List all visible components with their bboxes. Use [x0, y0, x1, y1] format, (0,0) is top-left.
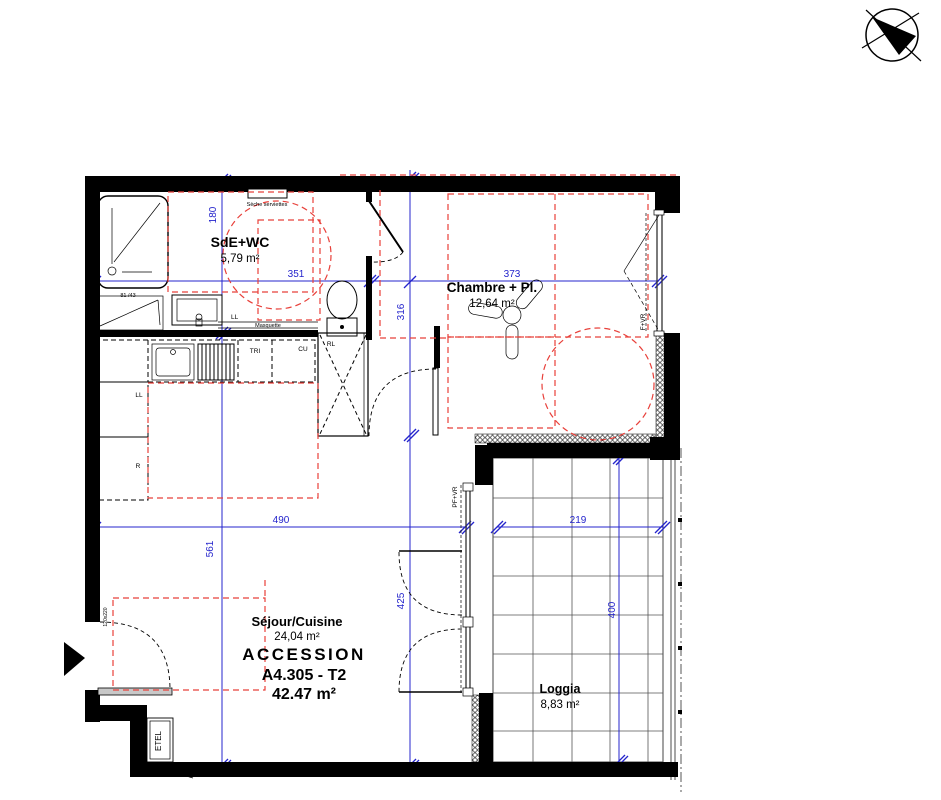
hob-icon: [198, 344, 234, 380]
label-washbasin: 81 /43: [120, 293, 135, 299]
shower-icon: [98, 196, 168, 288]
living-room-window: [461, 483, 473, 696]
loggia-tile-grid: [493, 458, 663, 762]
dim-219: 219: [570, 515, 587, 526]
dimension-ticks: [86, 172, 670, 772]
bathroom-door: [369, 201, 403, 262]
floor-plan-drawing: 351 373 490 219 180 316 561 425 400 SdE+…: [0, 0, 941, 800]
room-label-chambre: Chambre + Pl.: [447, 280, 537, 295]
label-pfvr: PF+VR: [452, 486, 459, 507]
lot-total-area: 42.47 m²: [272, 686, 336, 703]
entrance-door: [64, 622, 172, 695]
room-area-loggia: 8,83 m²: [541, 699, 580, 711]
floor-plan-page: 351 373 490 219 180 316 561 425 400 SdE+…: [0, 0, 941, 800]
dim-400: 400: [607, 601, 618, 618]
dim-490: 490: [273, 515, 290, 526]
label-masquette: Masquette: [255, 323, 281, 329]
room-label-sde: SdE+WC: [211, 234, 270, 250]
kitchen-counter: [95, 340, 315, 500]
label-etel: ETEL: [154, 730, 163, 751]
closet-icon: [318, 333, 368, 436]
label-entry-door-size: 120x220: [103, 607, 109, 626]
toilet-icon: [327, 281, 357, 336]
vanity-icon: [97, 296, 163, 330]
dim-425: 425: [396, 592, 407, 609]
loggia-railing: [671, 448, 682, 792]
room-label-loggia: Loggia: [540, 682, 582, 696]
exterior-walls: [85, 176, 680, 778]
dim-561: 561: [205, 540, 216, 557]
label-towel-dryer: Sèche serviettes: [247, 202, 288, 208]
room-area-sde: 5,79 m²: [221, 253, 260, 265]
dimension-lines: [90, 170, 663, 768]
label-tri: TRI: [250, 348, 261, 355]
dim-373: 373: [504, 269, 521, 280]
label-fvr: F+VR: [640, 313, 647, 330]
bedroom-door: [369, 368, 438, 436]
dim-316: 316: [396, 303, 407, 320]
accessibility-zones: [113, 175, 680, 690]
entrance-arrow-icon: [64, 642, 85, 676]
label-ll-bathroom: LL: [231, 314, 239, 321]
room-label-sejour: Séjour/Cuisine: [251, 614, 342, 629]
label-ll-kitchen: LL: [135, 392, 143, 399]
label-rl: RL: [327, 341, 336, 348]
label-fridge: R: [136, 463, 141, 470]
dim-180: 180: [208, 206, 219, 223]
sink-icon: [152, 344, 194, 380]
north-compass-icon: [862, 9, 921, 61]
towel-dryer-icon: [248, 189, 287, 198]
label-cu: CU: [298, 346, 308, 353]
washer-unit: [95, 382, 148, 437]
lot-reference: A4.305 - T2: [262, 667, 347, 684]
loggia-french-doors: [399, 551, 462, 692]
room-area-sejour: 24,04 m²: [274, 631, 320, 643]
lot-program: ACCESSION: [242, 645, 366, 664]
washbasin-icon: [172, 295, 222, 326]
interior-walls: [85, 192, 440, 368]
room-area-chambre: 12,64 m²: [469, 298, 515, 310]
dim-351: 351: [288, 269, 305, 280]
